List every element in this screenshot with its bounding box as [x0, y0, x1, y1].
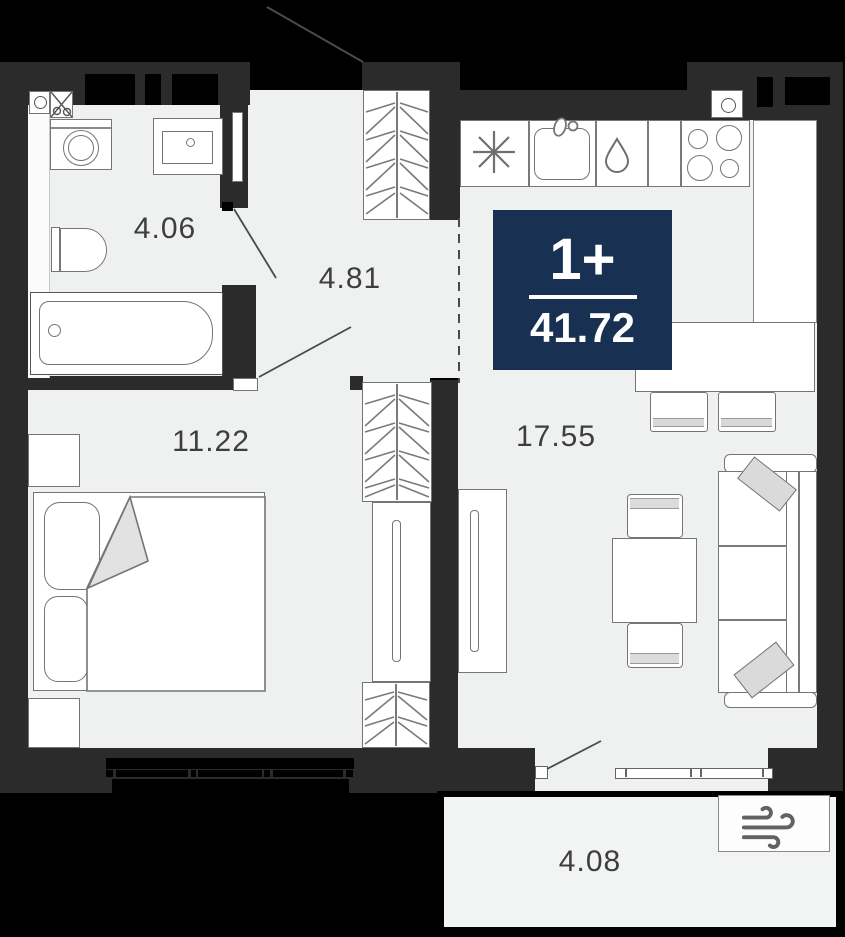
chair-back-band: [630, 498, 679, 509]
air-conditioner-box: [718, 795, 830, 852]
sofa-armrest-bottom: [724, 692, 817, 708]
bathroom-sink: [153, 118, 223, 175]
bathroom-sink-drain: [186, 138, 195, 147]
bedroom-window-seg: [198, 770, 262, 777]
balcony-sliding-window: [615, 768, 773, 779]
washing-machine: [50, 119, 112, 170]
burner-icon: [716, 125, 742, 151]
shaft-top-right-2: [785, 77, 830, 105]
burner-icon: [687, 155, 713, 181]
stool-seat-band: [653, 418, 704, 427]
bedroom-window-seg: [191, 770, 196, 777]
sliding-door-panel: [392, 520, 401, 662]
unit-total-area: 41.72: [530, 307, 635, 349]
sliding-door-bedroom: [372, 502, 431, 682]
counter-divider: [595, 121, 597, 186]
counter-divider: [528, 121, 530, 186]
wall-end-cap: [222, 202, 233, 211]
entry-door-line: [267, 7, 363, 62]
wall-right: [817, 120, 843, 748]
vent-box: [29, 91, 50, 114]
bedroom-window-seg: [273, 770, 343, 777]
unit-type: 1+: [549, 231, 615, 289]
nightstand-bottom: [28, 698, 80, 748]
burner-icon: [688, 129, 708, 149]
toilet-tank: [51, 227, 60, 272]
wall-bathroom-bottom: [0, 376, 233, 390]
shaft-top-left-1: [85, 74, 135, 105]
shaft-top-left-3: [172, 74, 218, 105]
room-label-living-kitchen: 17.55: [516, 420, 596, 454]
burner-icon: [720, 159, 739, 178]
sliding-door-living: [458, 489, 507, 673]
nightstand-top: [28, 434, 80, 487]
toilet-bowl: [60, 228, 107, 272]
sliding-door-panel: [470, 510, 479, 652]
shaft-symbol-box: [50, 91, 73, 118]
kitchen-sink: [534, 128, 590, 180]
counter-divider: [647, 121, 649, 186]
room-label-bathroom: 4.06: [134, 212, 196, 246]
washer-panel-line: [51, 127, 111, 129]
sofa-cushion-line: [719, 619, 787, 621]
window-divider: [690, 769, 692, 777]
bathtub-drain: [48, 324, 61, 337]
stool-seat-band: [721, 418, 772, 427]
bedroom-window-bar-bottom: [112, 779, 349, 793]
wall-stub-bathroom: [222, 285, 256, 390]
wall-column-main: [430, 380, 458, 793]
shaft-top-right-1: [757, 77, 773, 107]
wall-bottom-right: [768, 748, 843, 793]
dining-chair: [627, 494, 683, 538]
room-label-hallway: 4.81: [319, 262, 381, 296]
bedroom-window-seg: [106, 770, 113, 777]
dining-chair: [627, 623, 683, 668]
washer-door-inner: [68, 135, 94, 161]
bedroom-window-seg: [264, 770, 270, 777]
chair-back-band: [630, 653, 679, 664]
bedroom-window-bar-top: [106, 758, 354, 769]
bathroom-sink-basin: [162, 131, 213, 164]
dining-table: [612, 538, 697, 623]
unit-badge: 1+ 41.72: [493, 210, 672, 370]
balcony-door-hinge: [535, 766, 548, 779]
bedroom-window-seg: [346, 770, 353, 777]
sofa-back-line: [798, 472, 800, 692]
bathroom-door-leaf: [232, 112, 243, 182]
room-label-bedroom: 11.22: [172, 425, 250, 459]
bar-stool: [718, 392, 776, 432]
bathtub-inner: [39, 301, 213, 365]
floorplan: 1+ 41.72 4.06 4.81 11.22 17.55 4.08: [0, 0, 845, 937]
bar-stool: [650, 392, 708, 432]
wall-left: [0, 62, 28, 793]
kitchen-window: [460, 62, 687, 90]
wall-column-top: [430, 62, 460, 220]
shaft-top-left-2: [145, 74, 161, 105]
vent-circle-icon: [34, 96, 47, 109]
counter-divider: [680, 121, 682, 186]
boiler-box: [711, 90, 743, 118]
pillow: [44, 596, 88, 682]
window-divider: [625, 769, 627, 777]
window-divider: [762, 769, 764, 777]
pillow: [44, 502, 100, 590]
badge-divider: [529, 295, 637, 299]
bedroom-closet-lower-divider: [395, 684, 397, 746]
bedroom-door-leaf: [233, 378, 258, 391]
bedroom-window-seg: [116, 770, 188, 777]
tall-cabinet-column: [753, 120, 817, 323]
bedroom-wardrobe-divider: [396, 384, 398, 500]
bathtub: [30, 292, 223, 375]
sofa-cushion-line: [719, 545, 787, 547]
window-divider: [700, 769, 702, 777]
entry-closet-divider: [396, 92, 398, 218]
boiler-circle: [721, 98, 736, 113]
room-label-balcony: 4.08: [559, 845, 621, 879]
